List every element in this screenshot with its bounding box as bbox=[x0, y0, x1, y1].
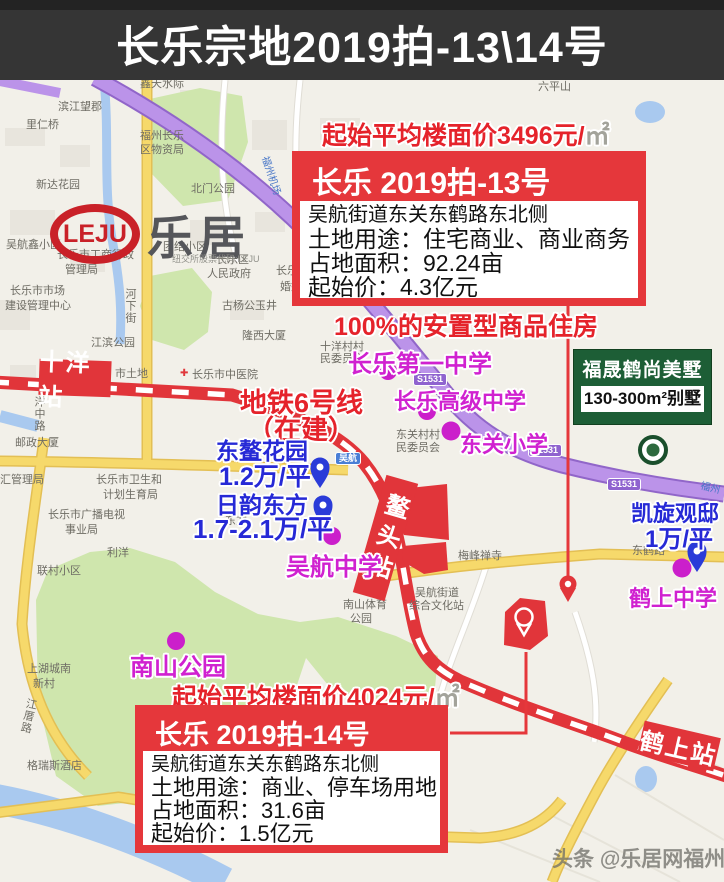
map-label: 古杨公玉井 bbox=[222, 300, 277, 312]
parcel-13-header: 长乐 2019拍-13号 bbox=[300, 159, 638, 201]
parcel-13-body: 吴航街道东关东鹤路东北侧 土地用途：住宅商业、商业商务 占地面积：92.24亩 … bbox=[300, 201, 638, 301]
school-label-wuhang: 吴航中学 bbox=[286, 547, 382, 582]
parcel-13-area: 占地面积：92.24亩 bbox=[308, 251, 630, 275]
parcel-14-area: 占地面积：31.6亩 bbox=[151, 799, 432, 822]
parcel-13-use: 土地用途：住宅商业、商业商务 bbox=[308, 227, 630, 251]
red-pin-icon bbox=[560, 576, 577, 603]
parcel-14-address: 吴航街道东关东鹤路东北侧 bbox=[151, 753, 432, 776]
map-label: 梅峰禅寺 bbox=[458, 550, 502, 562]
map-label: 市土地 bbox=[115, 368, 148, 380]
map-label: 长乐市市场 bbox=[10, 285, 65, 297]
parcel-14-price: 起始价：1.5亿元 bbox=[151, 822, 432, 845]
floor-price-13-text: 起始平均楼面价3496元/ bbox=[322, 122, 585, 150]
map-label: 事业局 bbox=[65, 524, 98, 536]
map-label: 北门公园 bbox=[191, 183, 235, 195]
map-label: 河下街 bbox=[124, 288, 136, 324]
road-badge-wuhang: 吴航 bbox=[335, 452, 361, 465]
map-label: 上湖城南 bbox=[27, 663, 71, 675]
estate-kaixuan-price: 1万/平 bbox=[645, 519, 713, 554]
page-title: 长乐宗地2019拍-13\14号 bbox=[116, 5, 608, 75]
map-label: 公园 bbox=[350, 613, 372, 625]
project-spec: 130-300m²别墅 bbox=[581, 386, 704, 412]
project-marker-icon bbox=[640, 437, 666, 463]
station-shiyang-label: 十洋站 bbox=[38, 342, 112, 414]
watermark: 头条 @乐居网福州 bbox=[552, 843, 724, 873]
station-shiyang: 十洋站 bbox=[38, 359, 111, 397]
map-label: 联村小区 bbox=[37, 565, 81, 577]
parcel-13-price: 起始价：4.3亿元 bbox=[308, 275, 630, 299]
map-poster: 鑫天水际 滨江望郡 里仁桥 福州长乐 区物资局 新达花园 北门公园 六平山 吴航… bbox=[0, 0, 724, 882]
map-label: 计划生育局 bbox=[103, 489, 158, 501]
map-label: 新达花园 bbox=[36, 179, 80, 191]
project-name: 福晟鹤尚美墅 bbox=[574, 355, 711, 382]
map-label: 南山体育 bbox=[343, 599, 387, 611]
map-label: 区物资局 bbox=[140, 144, 184, 156]
map-label: 长乐市卫生和 bbox=[96, 474, 162, 486]
school-label-dongguan: 东关小学 bbox=[460, 427, 548, 459]
leju-logo: LEJU 乐居 纽交所股票代码:LEJU bbox=[50, 204, 310, 268]
map-label: 吴航街道 bbox=[415, 587, 459, 599]
leju-logo-oval: LEJU bbox=[50, 204, 140, 264]
school-label-changle-no1: 长乐第一中学 bbox=[348, 344, 492, 379]
park-label-nanshan: 南山公园 bbox=[130, 647, 226, 682]
parcel-14-use: 土地用途：商业、停车场用地 bbox=[151, 776, 432, 799]
map-label: 综合文化站 bbox=[409, 600, 464, 612]
map-label: 人民政府 bbox=[207, 268, 251, 280]
parcel-14-infobox: 长乐 2019拍-14号 吴航街道东关东鹤路东北侧 土地用途：商业、停车场用地 … bbox=[135, 705, 448, 853]
hospital-cross-icon: ✚ bbox=[180, 369, 188, 379]
floor-price-13-unit: ㎡ bbox=[585, 122, 610, 150]
map-label: 长乐市广播电视 bbox=[48, 509, 125, 521]
parcel-14-body: 吴航街道东关东鹤路东北侧 土地用途：商业、停车场用地 占地面积：31.6亩 起始… bbox=[143, 751, 440, 847]
map-label: 邮政大厦 bbox=[15, 437, 59, 449]
parcel-13-address: 吴航街道东关东鹤路东北侧 bbox=[308, 203, 630, 227]
map-label: 里仁桥 bbox=[26, 119, 59, 131]
leju-logo-text: LEJU bbox=[63, 220, 127, 249]
resettlement-note: 100%的安置型商品住房 bbox=[334, 307, 598, 343]
title-bar: 长乐宗地2019拍-13\14号 bbox=[0, 0, 724, 80]
parcel-14-header: 长乐 2019拍-14号 bbox=[143, 713, 440, 751]
map-label: 六平山 bbox=[538, 81, 571, 93]
project-box: 福晟鹤尚美墅 130-300m²别墅 bbox=[573, 349, 712, 425]
map-label: 汇管理局 bbox=[0, 474, 44, 486]
map-label: 隆西大厦 bbox=[242, 330, 286, 342]
road-badge-s1531: S1531 bbox=[607, 478, 641, 491]
map-label: 建设管理中心 bbox=[5, 300, 71, 312]
floor-price-13: 起始平均楼面价3496元/㎡ bbox=[322, 116, 610, 152]
estate-riyun-price: 1.7-2.1万/平 bbox=[193, 509, 333, 546]
map-label: 格瑞斯酒店 bbox=[27, 760, 82, 772]
map-label: 利洋 bbox=[107, 547, 129, 559]
school-label-heshang: 鹤上中学 bbox=[629, 581, 717, 613]
map-label: 民委员会 bbox=[396, 442, 440, 454]
map-label: 新村 bbox=[33, 678, 55, 690]
pin-dongao-icon bbox=[311, 458, 330, 489]
map-label: 长乐市中医院 bbox=[192, 369, 258, 381]
map-label: 东关村村 bbox=[396, 429, 440, 441]
map-label: 滨江望郡 bbox=[58, 101, 102, 113]
parcel-13-infobox: 长乐 2019拍-13号 吴航街道东关东鹤路东北侧 土地用途：住宅商业、商业商务… bbox=[292, 151, 646, 306]
school-label-gaoji: 长乐高级中学 bbox=[394, 384, 526, 416]
leju-logo-tagline: 纽交所股票代码:LEJU bbox=[172, 252, 260, 265]
map-label: 福州长乐 bbox=[140, 130, 184, 142]
